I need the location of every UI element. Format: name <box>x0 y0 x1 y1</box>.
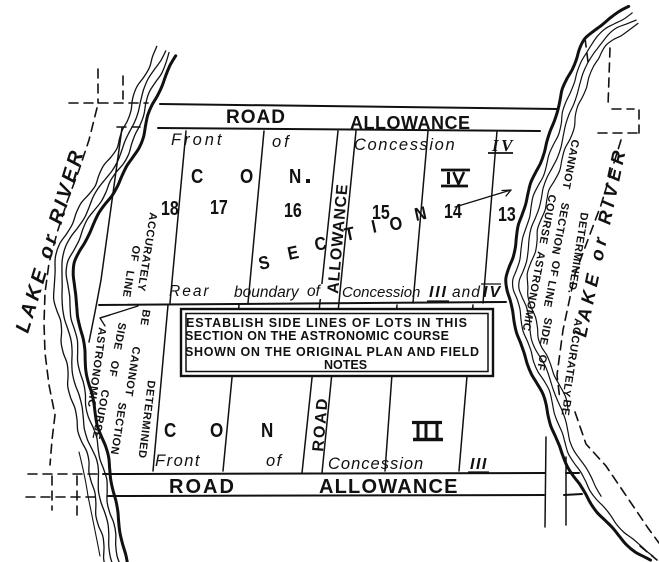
svg-text:Concession: Concession <box>354 136 456 154</box>
svg-text:N: N <box>261 419 273 442</box>
svg-text:Rear: Rear <box>169 283 211 300</box>
svg-text:17: 17 <box>210 196 228 218</box>
svg-text:Concession: Concession <box>328 455 424 473</box>
svg-text:N .: N . <box>289 165 311 188</box>
svg-text:ALLOWANCE: ALLOWANCE <box>350 113 471 133</box>
svg-text:of: of <box>307 283 322 300</box>
svg-text:IV: IV <box>483 284 502 301</box>
svg-text:and: and <box>452 284 481 301</box>
svg-text:O: O <box>210 419 223 442</box>
svg-text:BE: BE <box>137 309 151 327</box>
svg-text:Front: Front <box>171 131 225 149</box>
svg-text:III: III <box>429 284 448 301</box>
svg-text:ROAD: ROAD <box>226 107 286 128</box>
svg-text:of: of <box>266 452 284 470</box>
svg-text:ALLOWANCE: ALLOWANCE <box>319 476 459 498</box>
svg-text:SHOWN ON THE ORIGINAL PLAN AND: SHOWN ON THE ORIGINAL PLAN AND FIELD <box>185 345 479 359</box>
svg-text:Concession: Concession <box>342 284 420 301</box>
svg-text:III: III <box>470 456 488 473</box>
svg-text:C: C <box>164 419 176 442</box>
svg-text:ROAD: ROAD <box>169 476 236 498</box>
svg-text:14: 14 <box>444 200 462 222</box>
svg-text:Front: Front <box>155 452 201 470</box>
svg-text:15: 15 <box>372 201 390 223</box>
svg-text:18: 18 <box>161 197 179 219</box>
svg-text:of: of <box>272 133 292 151</box>
svg-text:C: C <box>191 165 203 188</box>
svg-text:NOTES: NOTES <box>324 358 367 372</box>
svg-text:ESTABLISH SIDE LINES OF LOTS I: ESTABLISH SIDE LINES OF LOTS IN THIS <box>186 316 467 330</box>
svg-text:boundary: boundary <box>234 284 300 301</box>
svg-text:O: O <box>240 165 253 188</box>
svg-text:13: 13 <box>498 203 516 225</box>
svg-text:SECTION ON THE ASTRONOMIC COUR: SECTION ON THE ASTRONOMIC COURSE <box>185 329 449 343</box>
svg-text:16: 16 <box>284 199 302 221</box>
svg-text:BE: BE <box>558 399 572 417</box>
